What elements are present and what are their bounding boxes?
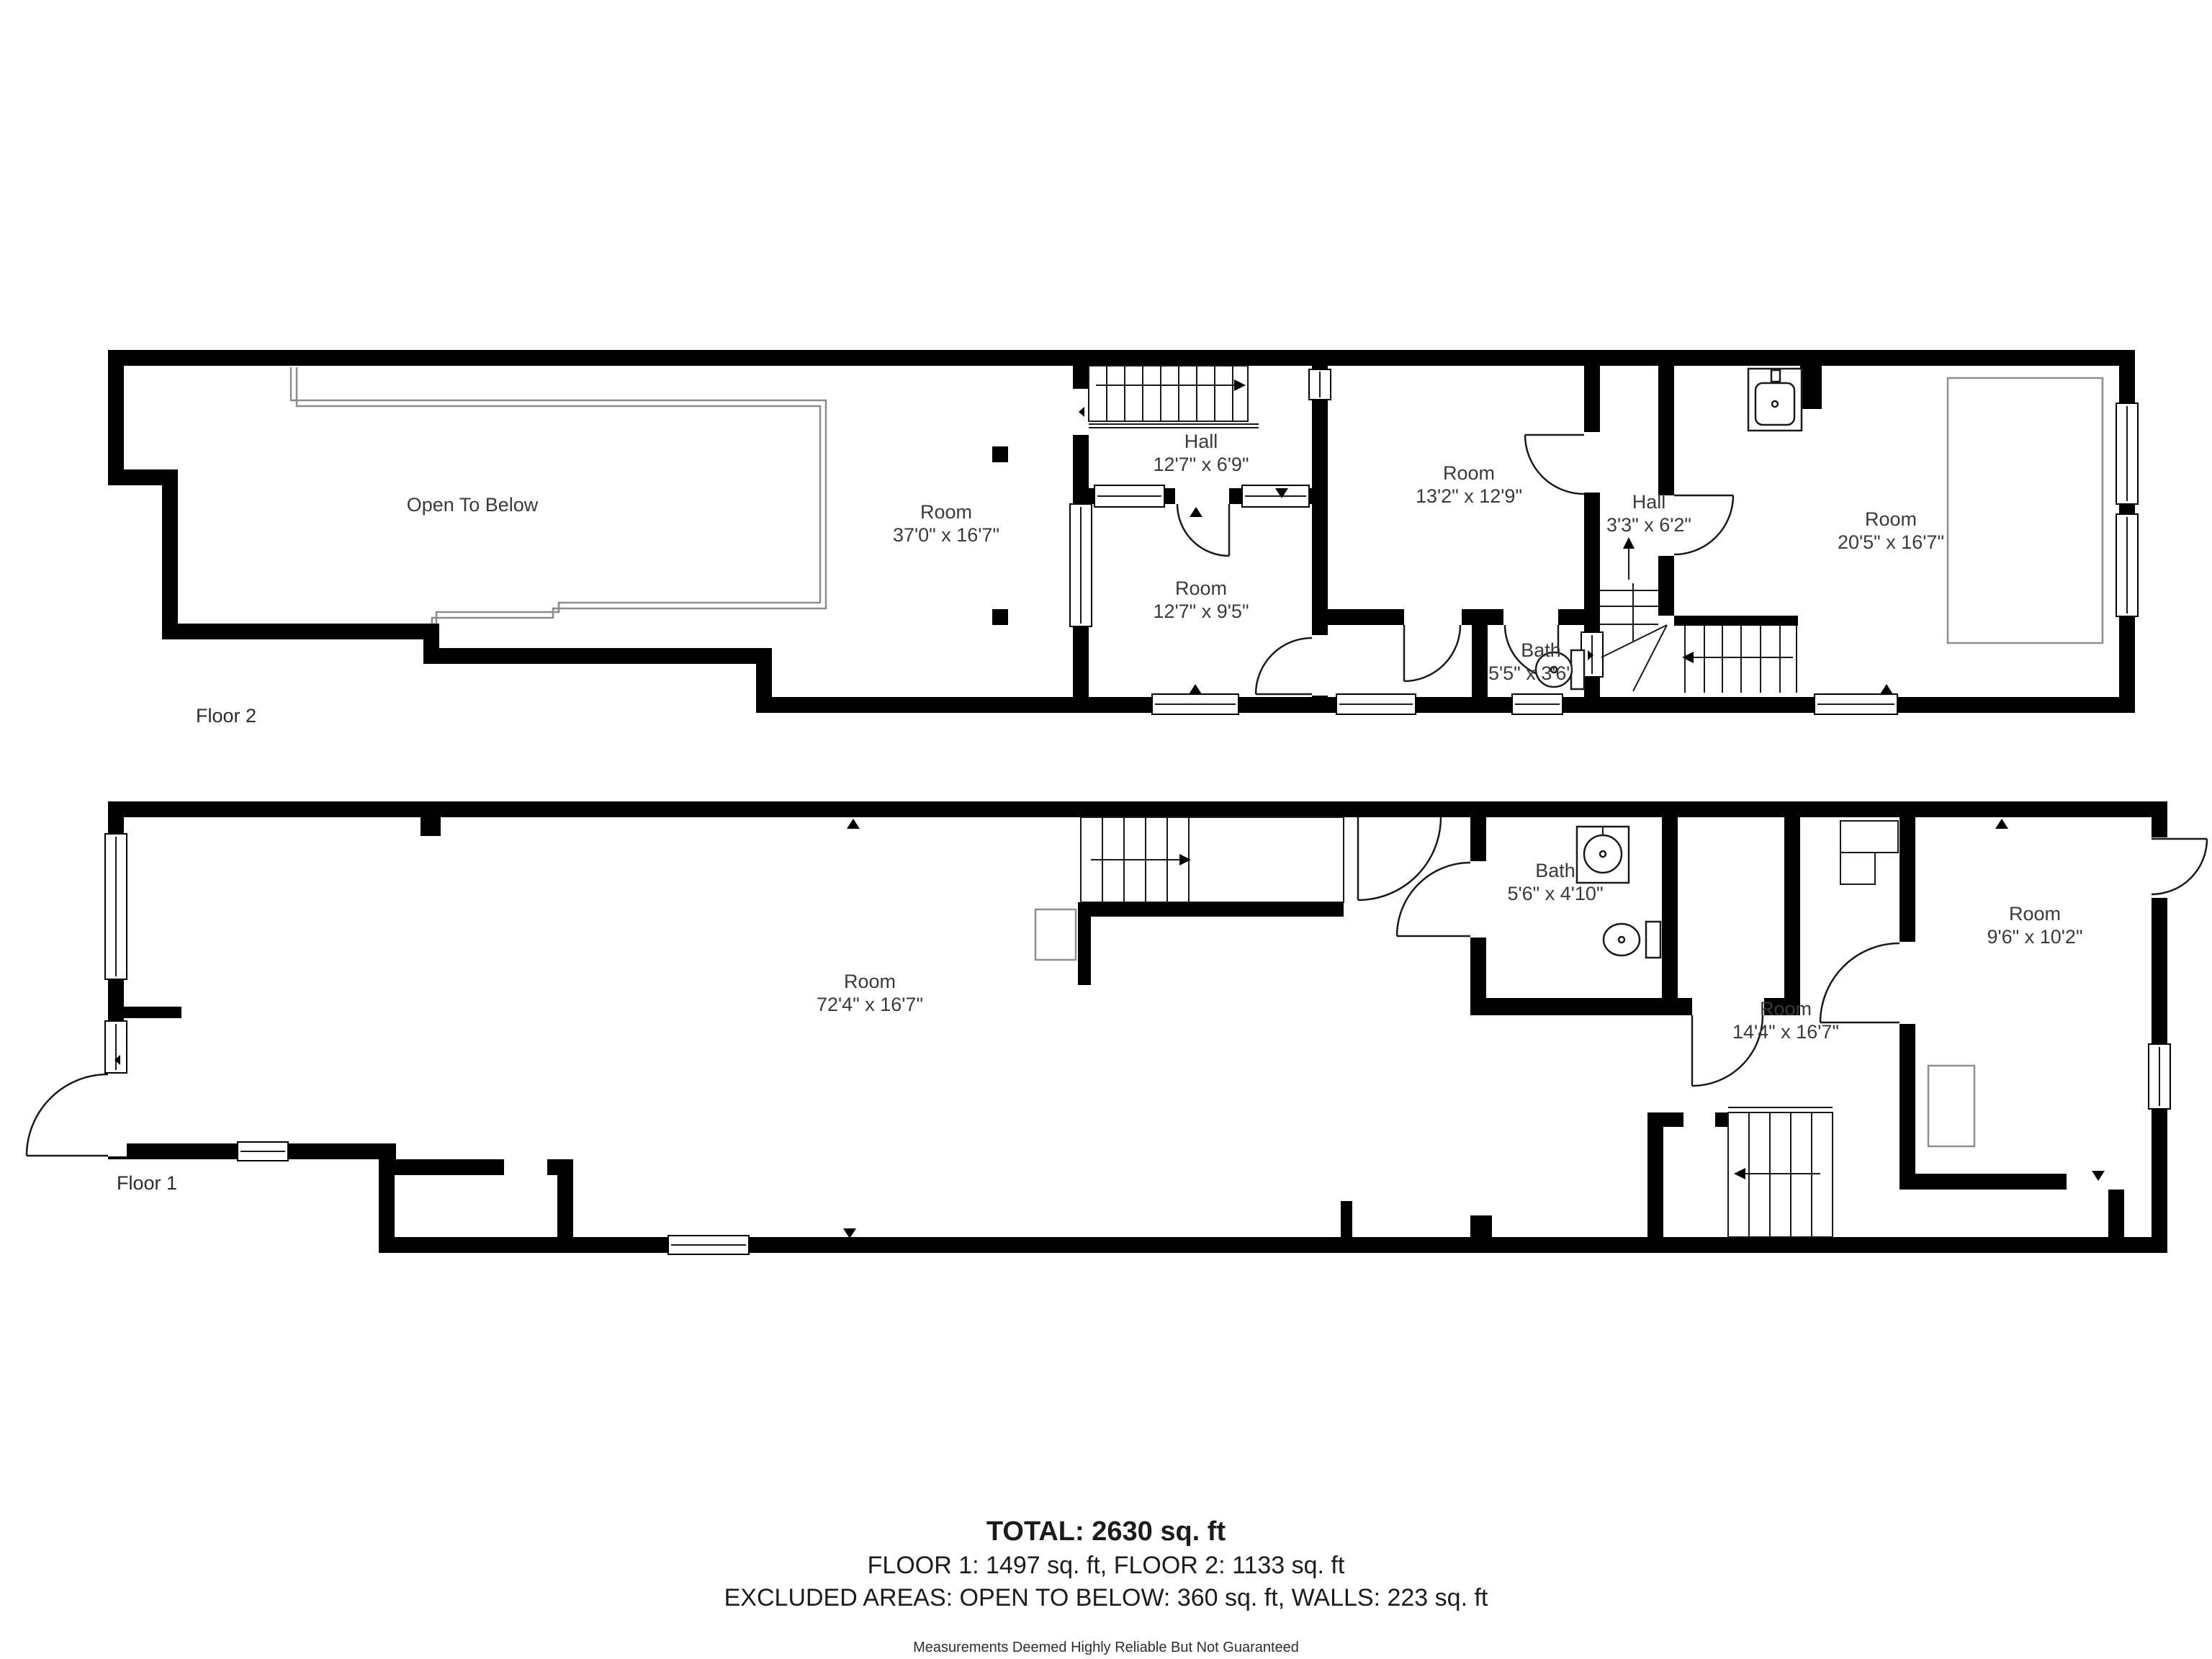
open-to-below-label: Open To Below [407, 494, 539, 516]
door-arc [1358, 817, 1441, 900]
floor1-door-openings [105, 837, 2170, 1177]
bath-label: Bath [1521, 639, 1561, 661]
window [1070, 504, 1092, 626]
step-outline [1840, 853, 1875, 884]
room-label: Room [2009, 903, 2061, 925]
room-label: Room [1175, 577, 1227, 599]
window [1309, 369, 1331, 400]
toilet-icon [1604, 922, 1660, 958]
room-label: Room [844, 971, 896, 992]
closet-outline [1948, 378, 2103, 643]
floor1-exterior-walls [108, 801, 2167, 1253]
room-dims: 14'4" x 16'7" [1732, 1021, 1839, 1043]
floor2-interior-walls [992, 366, 1822, 713]
sink-icon [1577, 827, 1629, 883]
bath-dims: 5'6" x 4'10" [1507, 883, 1603, 904]
open-to-below-outline [291, 367, 826, 624]
room-dims: 72'4" x 16'7" [817, 994, 923, 1015]
room-dims: 9'6" x 10'2" [1987, 926, 2082, 948]
window [2116, 403, 2138, 504]
stairs-icon [1081, 817, 1344, 902]
window [1094, 485, 1164, 507]
window [2116, 514, 2138, 616]
hall-dims: 12'7" x 6'9" [1153, 454, 1249, 475]
disclaimer: Measurements Deemed Highly Reliable But … [0, 1640, 2212, 1656]
door-arc [1525, 435, 1584, 494]
floor2-walls [108, 350, 2135, 713]
room-dims: 13'2" x 12'9" [1416, 485, 1522, 507]
door-arc [27, 1074, 108, 1156]
floor1-walls [108, 801, 2167, 1253]
winder-stairs-icon [1600, 537, 1797, 693]
room-dims: 37'0" x 16'7" [893, 524, 999, 546]
window [1512, 694, 1563, 714]
window [1815, 694, 1897, 714]
bath-label: Bath [1535, 860, 1575, 881]
furniture-outline [1035, 909, 1076, 960]
floor1-plan: Room 72'4" x 16'7" Bath 5'6" x 4'10" Roo… [27, 801, 2207, 1254]
room-label: Room [1865, 508, 1917, 530]
room-label: Room [1760, 998, 1812, 1020]
room-dims: 20'5" x 16'7" [1838, 531, 1944, 553]
hall-label: Hall [1632, 491, 1666, 513]
floor1-furniture [1035, 821, 1974, 1146]
excluded-areas: EXCLUDED AREAS: OPEN TO BELOW: 360 sq. f… [0, 1584, 2212, 1612]
door-arc [1397, 863, 1470, 936]
window [2149, 1044, 2170, 1109]
window [238, 1142, 288, 1161]
step-outline [1840, 821, 1898, 853]
door-arc [1177, 504, 1229, 556]
floor1-doors [27, 817, 2207, 1156]
floor2-tag: Floor 2 [196, 705, 256, 727]
room-label: Room [920, 501, 972, 523]
floor2-exterior-walls [108, 350, 2135, 713]
total-area: TOTAL: 2630 sq. ft [0, 1516, 2212, 1547]
window [1152, 694, 1238, 714]
area-summary: TOTAL: 2630 sq. ft FLOOR 1: 1497 sq. ft,… [0, 1516, 2212, 1656]
floor-areas: FLOOR 1: 1497 sq. ft, FLOOR 2: 1133 sq. … [0, 1552, 2212, 1580]
floor2-plan: Open To Below Room 37'0" x 16'7" Hall 12… [108, 350, 2138, 727]
bath-dims: 5'5" x 3'6" [1488, 662, 1573, 684]
stairs-icon [1089, 366, 1259, 428]
floor1-tag: Floor 1 [117, 1172, 177, 1194]
window [105, 834, 127, 979]
hall-label: Hall [1184, 431, 1218, 452]
floorplan-drawing: Open To Below Room 37'0" x 16'7" Hall 12… [0, 0, 2212, 1659]
door-arc [1256, 638, 1312, 694]
sink-icon [1748, 369, 1802, 431]
window [1336, 694, 1416, 714]
door-arc [1404, 625, 1460, 681]
floor1-windows [105, 834, 2170, 1254]
stairs-icon [1728, 1107, 1833, 1237]
hall-dims: 3'3" x 6'2" [1606, 514, 1691, 536]
window [105, 1021, 127, 1073]
floorplan-page: Open To Below Room 37'0" x 16'7" Hall 12… [0, 0, 2212, 1659]
room-label: Room [1443, 462, 1495, 484]
room-dims: 12'7" x 9'5" [1153, 601, 1249, 622]
furniture-outline [1928, 1066, 1974, 1146]
door-arc [1820, 943, 1899, 1022]
window [668, 1236, 749, 1254]
